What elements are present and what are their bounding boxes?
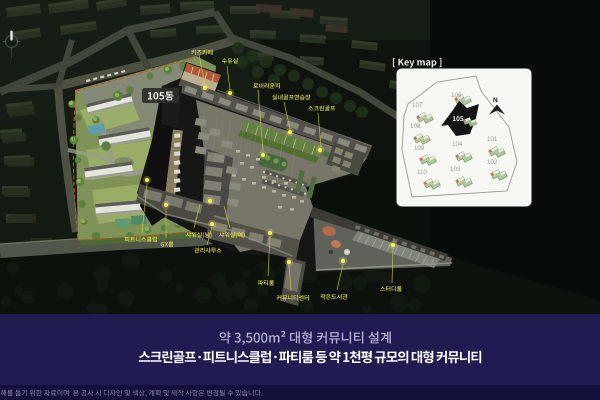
svg-text:106: 106 [451, 92, 462, 99]
svg-text:104: 104 [452, 141, 463, 148]
svg-text:103: 103 [450, 166, 461, 173]
svg-text:110: 110 [417, 169, 427, 176]
svg-text:108: 108 [410, 123, 421, 130]
svg-text:109: 109 [414, 145, 425, 152]
svg-text:N: N [493, 97, 498, 104]
svg-text:101: 101 [487, 136, 498, 143]
svg-text:107: 107 [412, 102, 423, 109]
svg-text:102: 102 [487, 159, 498, 166]
